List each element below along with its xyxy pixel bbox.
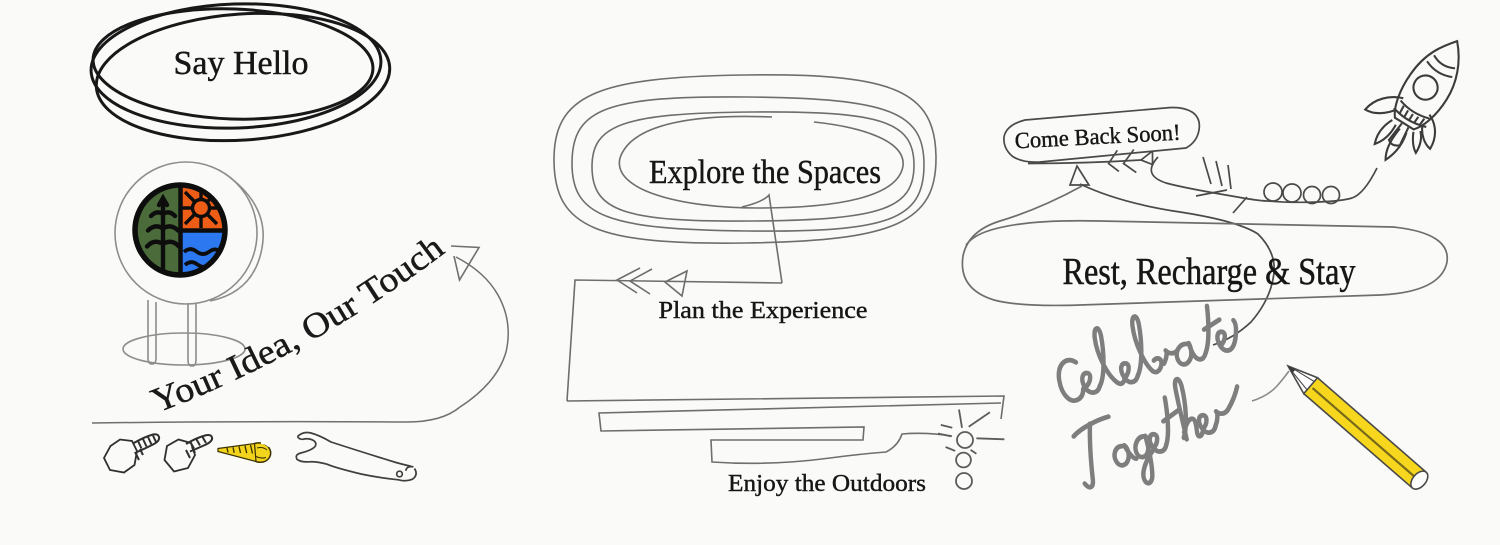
- svg-text:Rest, Recharge & Stay: Rest, Recharge & Stay: [1063, 251, 1357, 293]
- svg-text:Enjoy the Outdoors: Enjoy the Outdoors: [728, 471, 926, 497]
- svg-text:Say Hello: Say Hello: [173, 45, 308, 82]
- svg-text:Explore the Spaces: Explore the Spaces: [649, 154, 881, 191]
- svg-text:Plan the Experience: Plan the Experience: [659, 298, 868, 324]
- svg-text:Come Back Soon!: Come Back Soon!: [1014, 120, 1181, 154]
